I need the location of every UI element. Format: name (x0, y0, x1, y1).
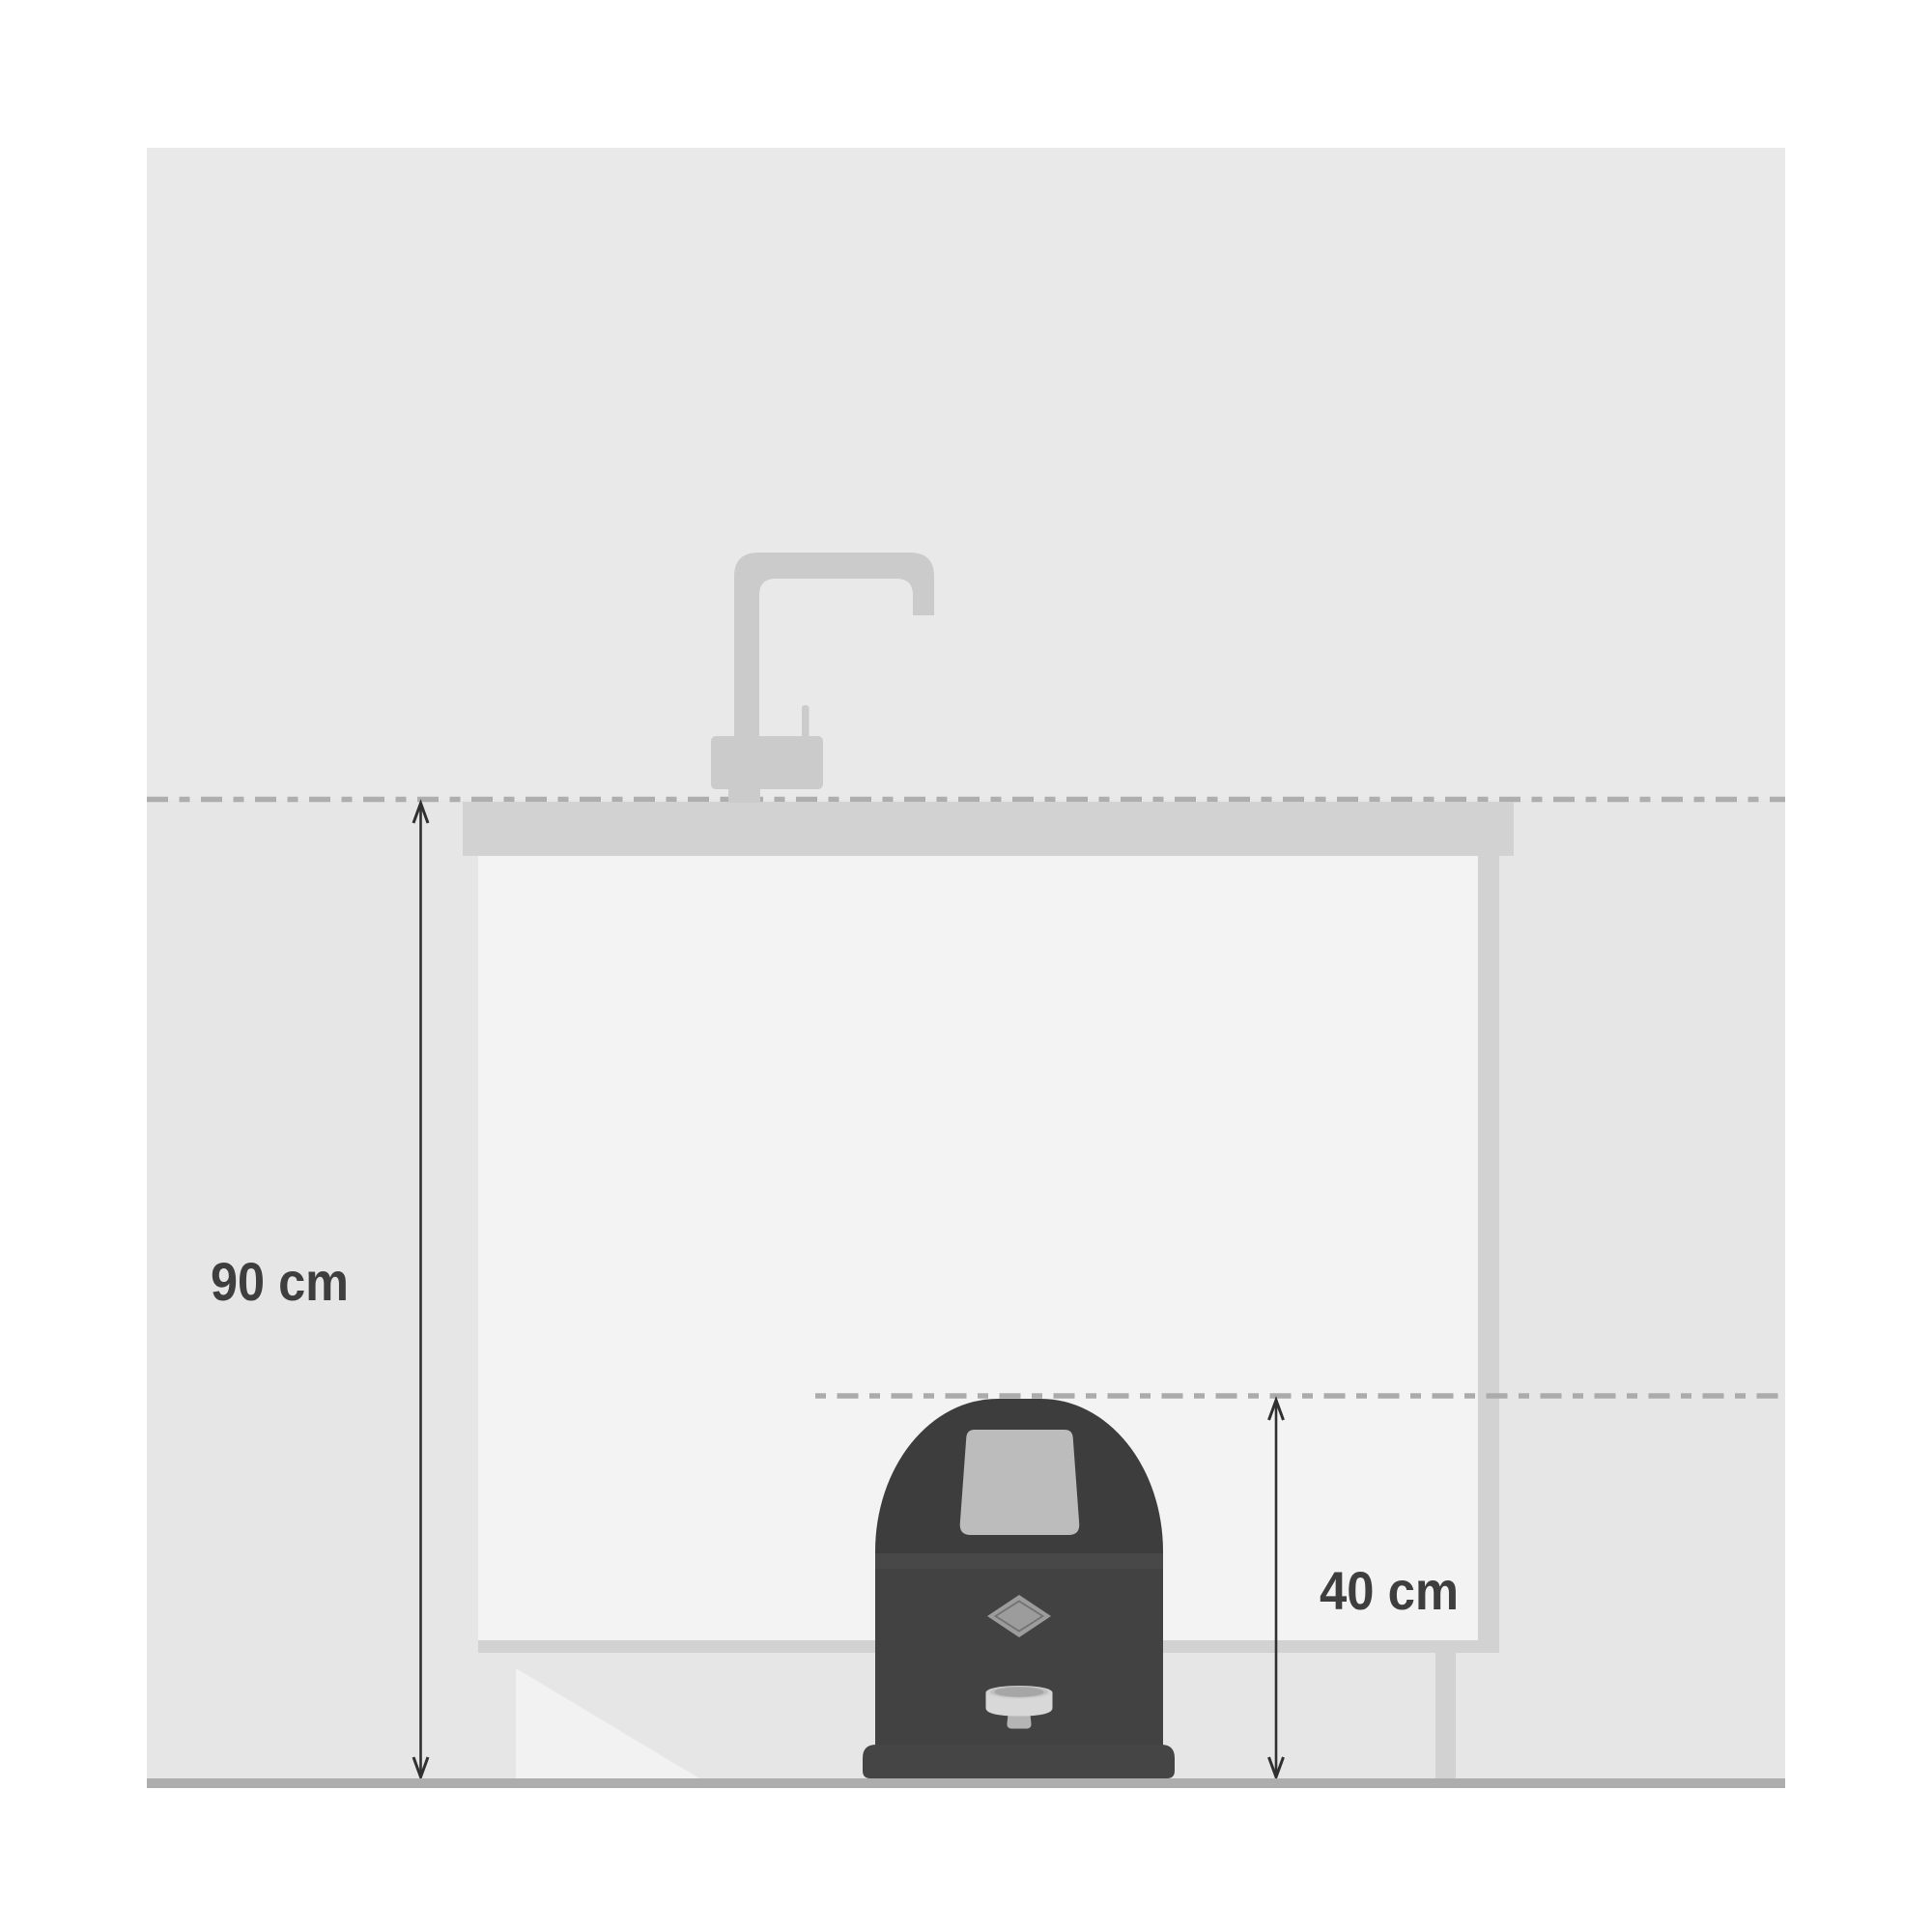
svg-text:40 cm: 40 cm (1320, 1560, 1459, 1621)
svg-text:90 cm: 90 cm (211, 1251, 349, 1312)
